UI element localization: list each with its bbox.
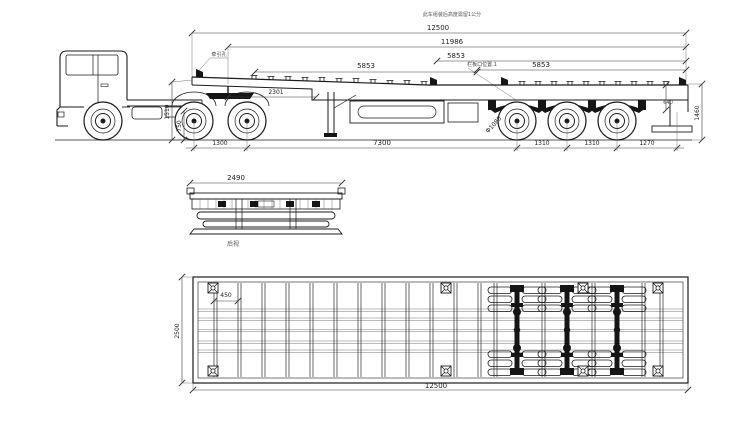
dim-span-front: 5853 — [252, 62, 480, 75]
assembly-note: 此车组装后高度需留1公分 — [423, 11, 481, 18]
rear-view-axle-band — [192, 199, 340, 209]
tractor — [57, 51, 269, 140]
dim-text-5853-rear: 5853 — [532, 61, 550, 69]
dim-text-2301: 2301 — [268, 89, 283, 96]
twist-lock-plan-7 — [578, 366, 588, 376]
dim-text-2490: 2490 — [227, 174, 245, 182]
tractor-front-wheel — [84, 102, 122, 140]
side-view: 此车组装后高度需留1公分 12500 11986 5853 5853 栏板口位置… — [55, 11, 705, 151]
toolbox — [350, 101, 478, 123]
twist-lock-side-rear — [679, 77, 686, 85]
kingpin-label: 牵引孔 — [211, 51, 226, 58]
dim-rear-height: 1460 — [688, 81, 705, 143]
dim-crossmember-pitch: 450 — [211, 292, 241, 304]
plan-longitudinal-rails — [198, 309, 683, 353]
fifth-wheel — [206, 93, 254, 99]
dim-text-1310b: 1310 — [584, 140, 599, 147]
dim-text-750: 750 — [176, 120, 183, 132]
dim-rear-width: 2490 — [187, 174, 345, 186]
dim-plan-width: 2500 — [174, 274, 193, 386]
dim-text-12500-plan: 12500 — [425, 382, 447, 390]
dim-text-640: 640 — [663, 100, 673, 106]
twist-lock-plan-5 — [208, 366, 218, 376]
dim-text-1310a: 1310 — [534, 140, 549, 147]
dim-text-5853-mid: 5853 — [447, 52, 465, 60]
dim-text-1510: 1510 — [164, 104, 171, 119]
twist-lock-plan-1 — [208, 283, 218, 293]
dim-rear-step: 640 — [663, 82, 673, 113]
plan-view: 450 2500 12500 — [174, 274, 691, 393]
dim-text-7300: 7300 — [373, 139, 391, 147]
twist-lock-plan-4 — [653, 283, 663, 293]
panel-note-label: 栏板口位置.1 — [467, 61, 497, 68]
dim-span-rear: 5853 — [474, 61, 689, 73]
twist-lock-plan-3 — [578, 283, 588, 293]
landing-gear — [324, 92, 356, 137]
dim-text-5853-front: 5853 — [357, 62, 375, 70]
dim-span-mid: 5853 栏板口位置.1 — [434, 52, 689, 100]
kingpin-callout: 牵引孔 — [196, 51, 228, 74]
dim-text-1300: 1300 — [212, 140, 227, 147]
rear-view-deck — [190, 193, 342, 199]
twist-lock-side-mid — [430, 77, 437, 85]
dim-text-2500: 2500 — [174, 323, 181, 338]
twist-lock-plan-2 — [441, 283, 451, 293]
dim-text-11986: 11986 — [441, 38, 464, 46]
dim-plan-length: 12500 — [190, 382, 691, 393]
dim-overall-length-side: 12500 — [189, 24, 689, 85]
rear-view: 2490 后视 — [187, 174, 345, 248]
trailer-engineering-drawing: 此车组装后高度需留1公分 12500 11986 5853 5853 栏板口位置… — [0, 0, 750, 426]
twist-lock-plan-8 — [653, 366, 663, 376]
dim-text-450: 450 — [220, 292, 232, 299]
plan-axle-3 — [588, 285, 646, 376]
twist-lock-side-axle — [501, 77, 508, 85]
dim-text-12500: 12500 — [427, 24, 449, 32]
dim-text-1270: 1270 — [639, 140, 654, 147]
plan-outline — [193, 277, 688, 383]
twist-lock-plan-6 — [441, 366, 451, 376]
plan-axle-2 — [538, 285, 596, 376]
rear-view-caption: 后视 — [227, 240, 239, 248]
drawing-sheet: 此车组装后高度需留1公分 12500 11986 5853 5853 栏板口位置… — [0, 0, 750, 426]
dim-text-1460: 1460 — [694, 105, 701, 120]
